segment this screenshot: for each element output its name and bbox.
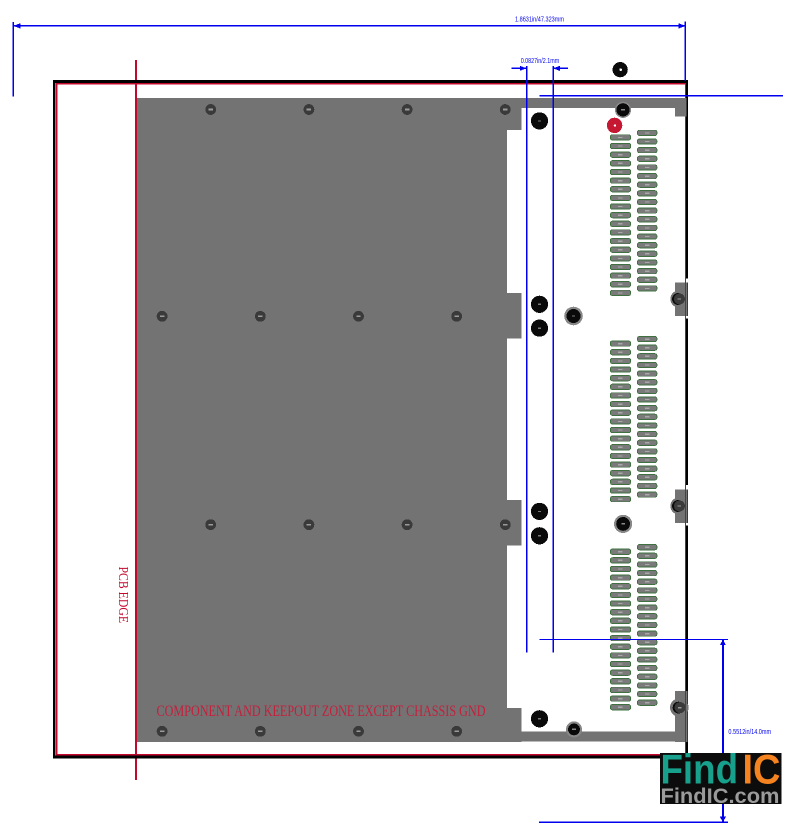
svg-text:COMPONENT AND KEEPOUT ZONE EXC: COMPONENT AND KEEPOUT ZONE EXCEPT CHASSI… (157, 703, 486, 720)
svg-text:0.0827in/2.1mm: 0.0827in/2.1mm (521, 58, 560, 65)
svg-text:FindIC.com: FindIC.com (661, 785, 780, 808)
svg-text:0.5512in/14.0mm: 0.5512in/14.0mm (728, 729, 771, 736)
svg-text:1.8631in/47.323mm: 1.8631in/47.323mm (515, 16, 564, 23)
svg-text:PCB EDGE: PCB EDGE (116, 567, 131, 624)
